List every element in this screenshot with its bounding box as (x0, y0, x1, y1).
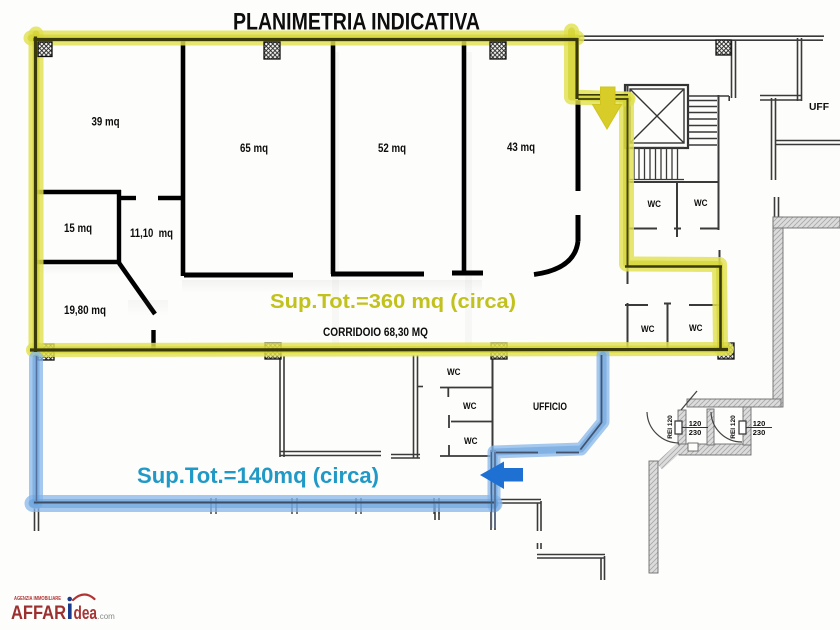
svg-text:WC: WC (689, 323, 703, 334)
svg-text:WC: WC (694, 198, 708, 209)
svg-text:15 mq: 15 mq (64, 221, 92, 235)
svg-text:PLANIMETRIA INDICATIVA: PLANIMETRIA INDICATIVA (233, 9, 480, 36)
svg-text:CORRIDOIO 68,30 MQ: CORRIDOIO 68,30 MQ (323, 325, 428, 339)
svg-text:WC: WC (447, 367, 461, 378)
svg-text:52 mq: 52 mq (378, 141, 406, 155)
svg-text:Sup.Tot.=140mq (circa): Sup.Tot.=140mq (circa) (137, 463, 379, 488)
svg-text:REI 120: REI 120 (730, 415, 737, 439)
svg-text:230: 230 (753, 428, 766, 437)
svg-text:WC: WC (648, 199, 662, 210)
svg-text:120: 120 (753, 419, 766, 428)
svg-text:AGENZIA IMMOBILIARE: AGENZIA IMMOBILIARE (14, 596, 62, 602)
svg-text:230: 230 (689, 428, 702, 437)
svg-text:AFFAR: AFFAR (11, 603, 66, 624)
svg-text:.com: .com (98, 612, 116, 621)
svg-text:UFF: UFF (809, 102, 829, 113)
svg-text:11,10 mq: 11,10 mq (130, 226, 173, 240)
svg-text:120: 120 (689, 419, 702, 428)
svg-text:43 mq: 43 mq (507, 140, 535, 154)
svg-text:65 mq: 65 mq (240, 141, 268, 155)
svg-text:WC: WC (641, 324, 655, 335)
svg-text:39 mq: 39 mq (92, 115, 120, 129)
svg-text:WC: WC (464, 436, 478, 447)
svg-text:WC: WC (463, 401, 477, 412)
svg-text:Sup.Tot.=360 mq (circa): Sup.Tot.=360 mq (circa) (270, 290, 516, 313)
svg-text:REI 120: REI 120 (667, 415, 674, 439)
svg-text:19,80 mq: 19,80 mq (64, 303, 106, 317)
svg-text:UFFICIO: UFFICIO (533, 401, 567, 413)
svg-text:dea: dea (74, 603, 98, 623)
